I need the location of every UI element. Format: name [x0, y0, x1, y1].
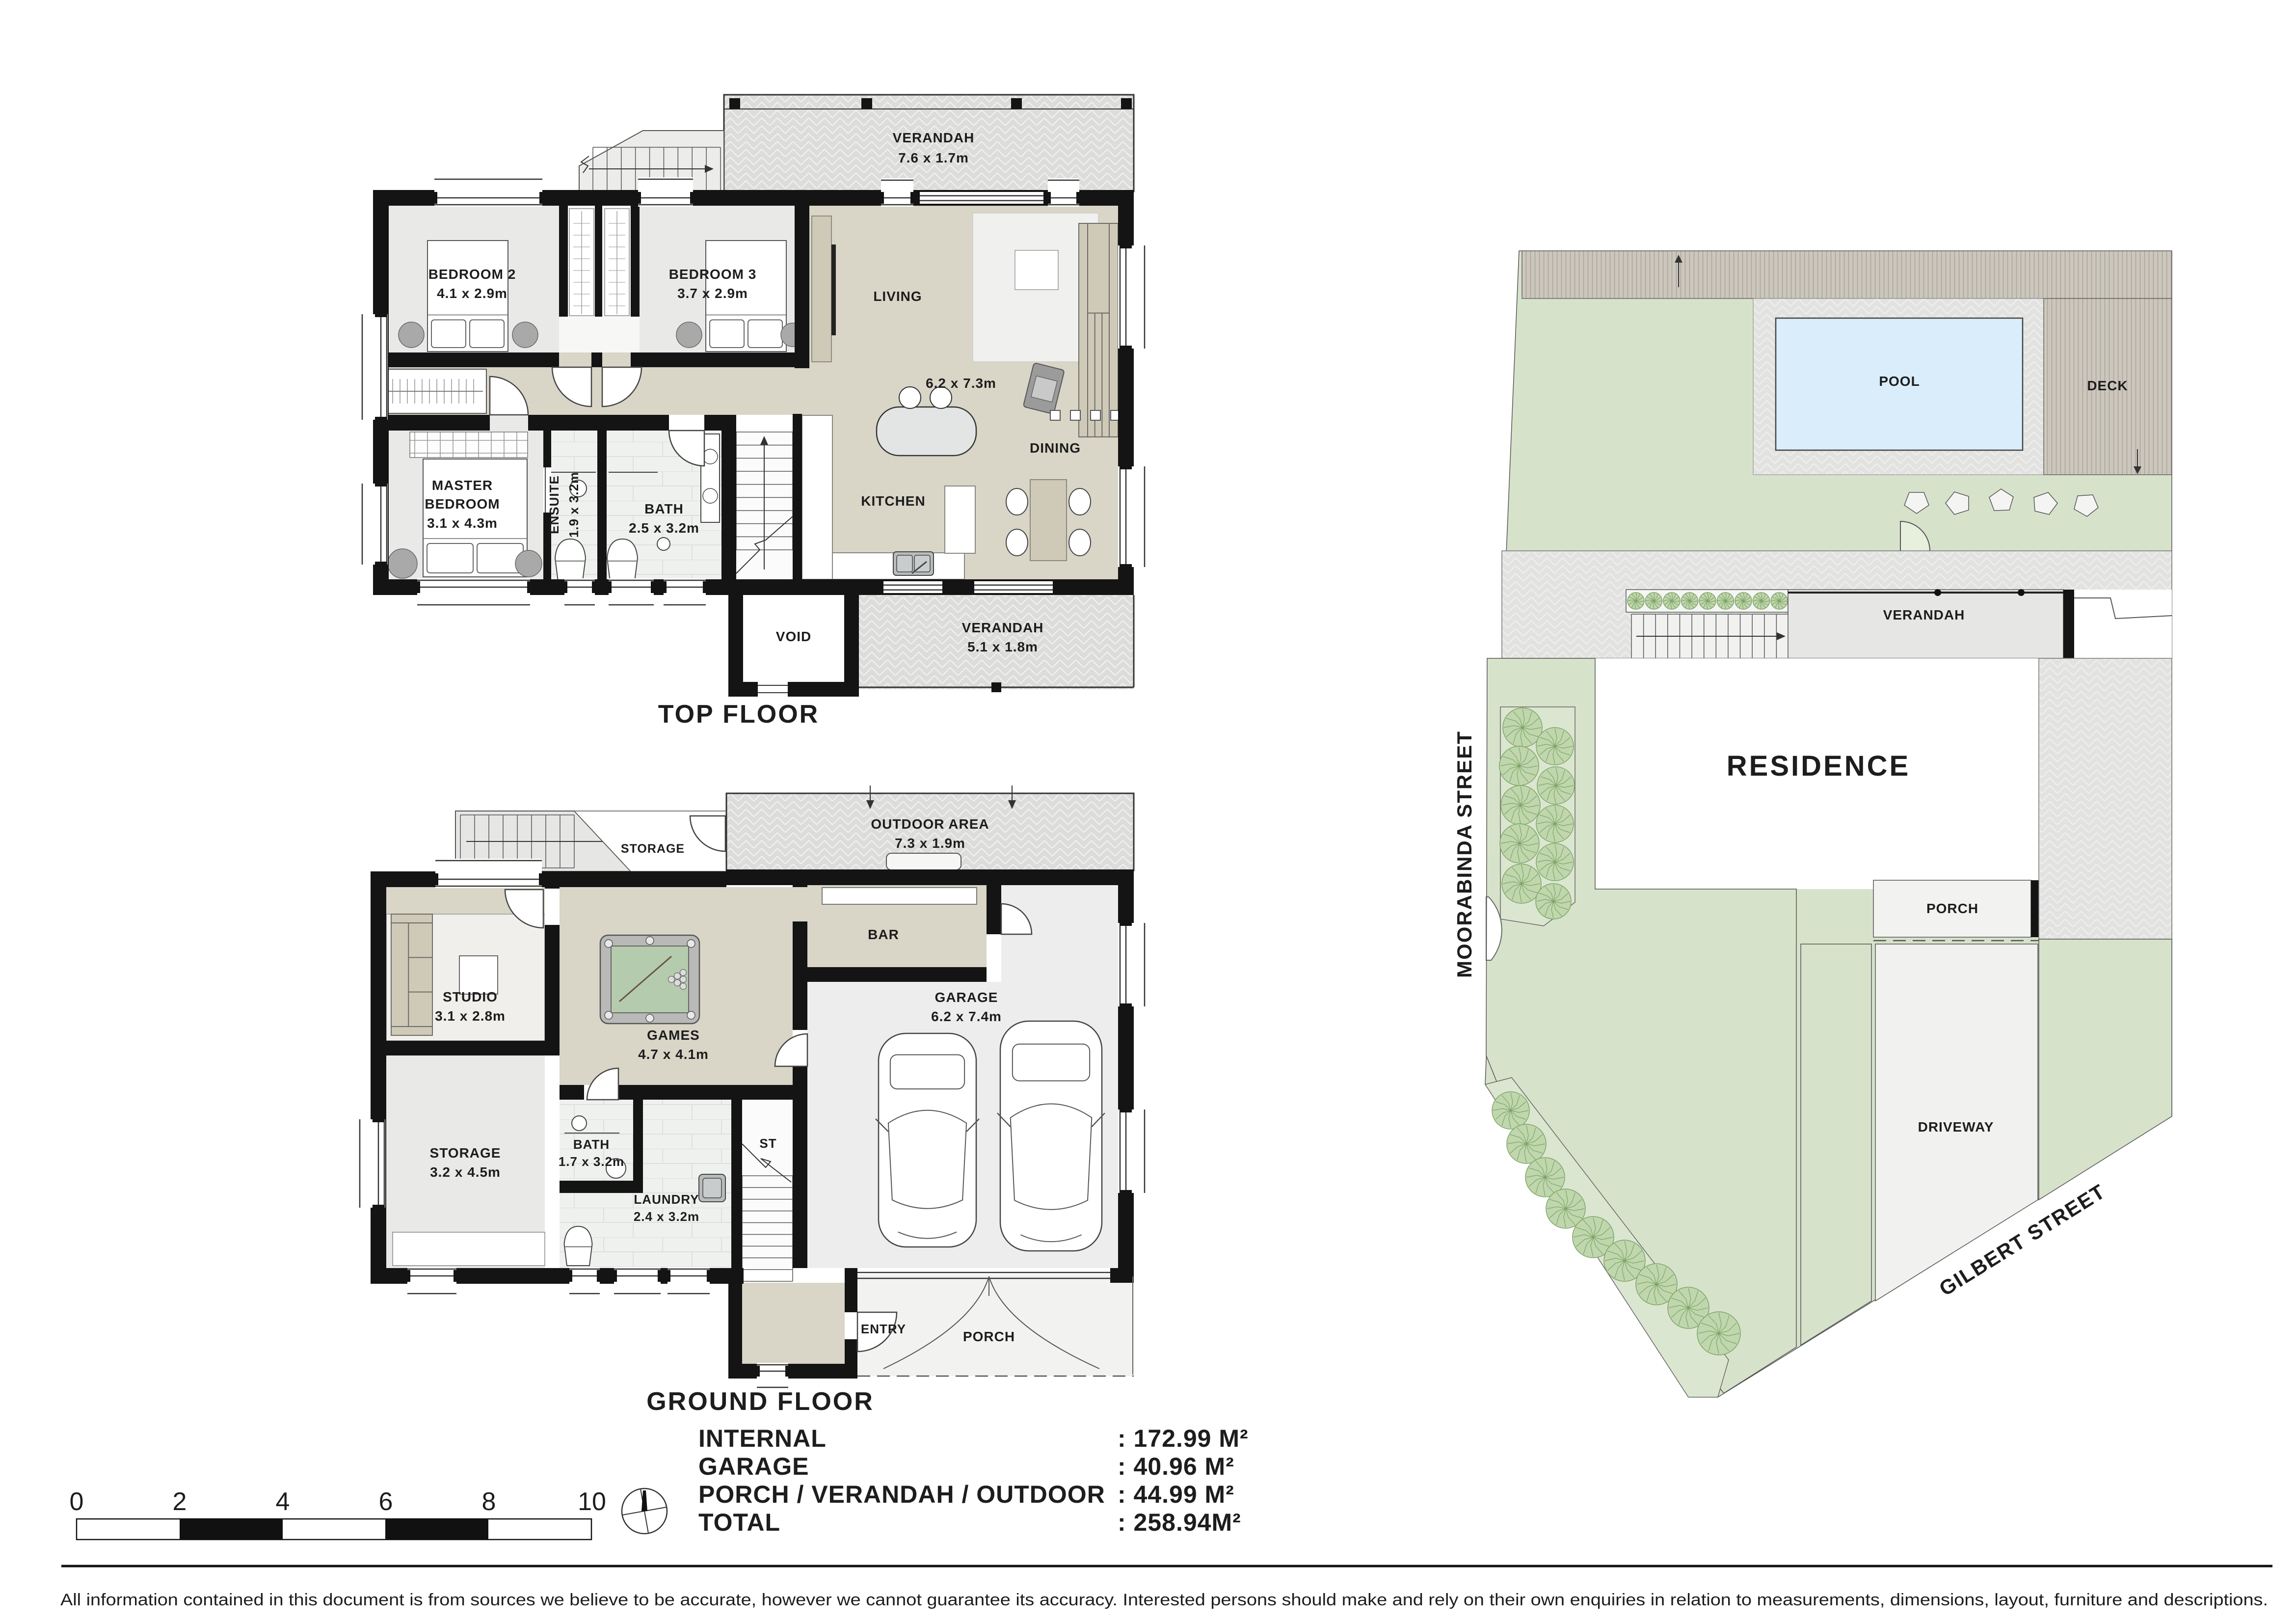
svg-text:GAMES: GAMES	[647, 1028, 700, 1043]
svg-text:2.5 x 3.2m: 2.5 x 3.2m	[629, 520, 699, 536]
svg-text:VERANDAH: VERANDAH	[1883, 607, 1965, 622]
svg-text:BAR: BAR	[868, 927, 899, 942]
svg-text:VERANDAH: VERANDAH	[962, 620, 1044, 635]
svg-text:MOORABINDA STREET: MOORABINDA STREET	[1453, 730, 1476, 978]
svg-text:POOL: POOL	[1879, 374, 1920, 389]
svg-text:BATH: BATH	[573, 1137, 610, 1152]
svg-text:7.3 x 1.9m: 7.3 x 1.9m	[895, 836, 965, 851]
svg-text:BEDROOM: BEDROOM	[425, 496, 500, 512]
svg-text:INTERNAL: INTERNAL	[698, 1425, 827, 1452]
svg-text:1.9 x 3.2m: 1.9 x 3.2m	[566, 472, 581, 538]
svg-text:6.2 x 7.3m: 6.2 x 7.3m	[926, 376, 996, 391]
svg-text:7.6 x 1.7m: 7.6 x 1.7m	[898, 150, 969, 165]
svg-text:BEDROOM 3: BEDROOM 3	[669, 267, 757, 282]
svg-text:STUDIO: STUDIO	[443, 989, 498, 1004]
svg-text:MASTER: MASTER	[432, 478, 493, 493]
svg-text:DRIVEWAY: DRIVEWAY	[1918, 1119, 1994, 1135]
svg-text:PORCH: PORCH	[1926, 901, 1978, 916]
svg-text:STORAGE: STORAGE	[621, 842, 685, 856]
svg-text:6: 6	[379, 1488, 393, 1516]
svg-text:GROUND FLOOR: GROUND FLOOR	[646, 1387, 874, 1416]
svg-text:6.2 x 7.4m: 6.2 x 7.4m	[931, 1009, 1002, 1024]
svg-text:OUTDOOR AREA: OUTDOOR AREA	[871, 816, 989, 832]
svg-text:4.7 x 4.1m: 4.7 x 4.1m	[638, 1047, 709, 1062]
svg-text:STORAGE: STORAGE	[430, 1145, 501, 1161]
svg-text:5.1 x 1.8m: 5.1 x 1.8m	[967, 639, 1038, 654]
svg-text:RESIDENCE: RESIDENCE	[1727, 750, 1910, 782]
svg-text:LIVING: LIVING	[873, 289, 922, 304]
svg-text:0: 0	[70, 1488, 84, 1516]
svg-text:3.1 x 2.8m: 3.1 x 2.8m	[435, 1008, 506, 1024]
svg-text:BATH: BATH	[644, 501, 684, 516]
svg-text:ST: ST	[759, 1136, 776, 1151]
svg-text:LAUNDRY: LAUNDRY	[634, 1192, 699, 1207]
svg-text:BEDROOM 2: BEDROOM 2	[428, 267, 516, 282]
svg-text:KITCHEN: KITCHEN	[861, 493, 925, 509]
svg-text:ENSUITE: ENSUITE	[547, 475, 561, 534]
svg-text:ENTRY: ENTRY	[861, 1322, 906, 1336]
svg-text:GARAGE: GARAGE	[935, 990, 998, 1005]
svg-text:PORCH / VERANDAH / OUTDOOR: PORCH / VERANDAH / OUTDOOR	[698, 1481, 1105, 1508]
svg-text:DECK: DECK	[2087, 378, 2128, 393]
svg-text:2.4 x 3.2m: 2.4 x 3.2m	[634, 1209, 699, 1224]
svg-text:TOP FLOOR: TOP FLOOR	[658, 700, 819, 729]
svg-text:: 40.96 M²: : 40.96 M²	[1118, 1453, 1234, 1480]
svg-text:8: 8	[482, 1488, 496, 1516]
svg-text:1.7 x 3.2m: 1.7 x 3.2m	[559, 1154, 624, 1169]
svg-text:2: 2	[173, 1488, 187, 1516]
svg-text:VOID: VOID	[776, 629, 811, 644]
svg-text:GARAGE: GARAGE	[698, 1453, 809, 1480]
svg-text:TOTAL: TOTAL	[698, 1509, 780, 1536]
svg-text:10: 10	[578, 1488, 606, 1516]
svg-text:3.7 x 2.9m: 3.7 x 2.9m	[677, 286, 748, 301]
svg-text:3.1 x 4.3m: 3.1 x 4.3m	[427, 515, 498, 531]
svg-text:: 44.99 M²: : 44.99 M²	[1118, 1481, 1234, 1508]
svg-text:4.1 x 2.9m: 4.1 x 2.9m	[437, 286, 507, 301]
svg-text:: 258.94M²: : 258.94M²	[1118, 1509, 1241, 1536]
svg-text:PORCH: PORCH	[963, 1329, 1015, 1344]
svg-text:4: 4	[276, 1488, 290, 1516]
svg-text:DINING: DINING	[1030, 440, 1081, 456]
svg-text:: 172.99 M²: : 172.99 M²	[1118, 1425, 1249, 1452]
svg-text:3.2 x 4.5m: 3.2 x 4.5m	[430, 1164, 501, 1180]
svg-text:VERANDAH: VERANDAH	[893, 130, 975, 145]
svg-text:All information contained in t: All information contained in this docume…	[60, 1591, 2268, 1609]
